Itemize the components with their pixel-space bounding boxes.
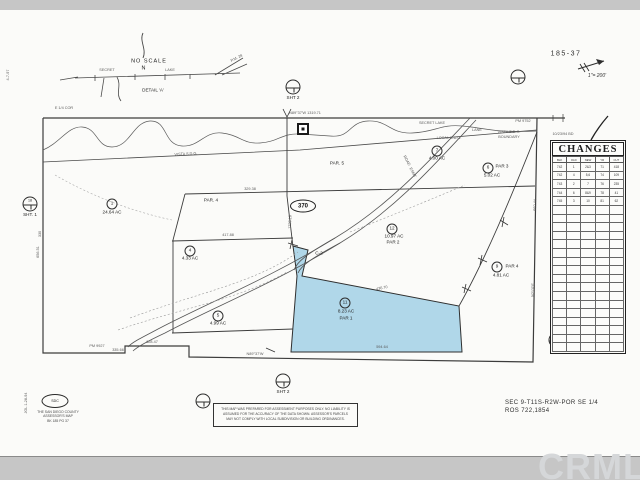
changes-empty-cell <box>553 248 567 257</box>
changes-empty-cell <box>581 214 595 223</box>
changes-empty-cell <box>609 326 623 335</box>
changes-cell: 41 <box>609 188 623 197</box>
changes-empty-cell <box>553 300 567 309</box>
crmls-watermark: CRMLS <box>538 449 640 480</box>
changes-empty-cell <box>609 309 623 318</box>
parcel-number-circle: 12 <box>387 224 398 235</box>
changes-cell: 1 <box>567 163 581 172</box>
map-label: N89°37'W <box>246 353 263 357</box>
changes-cell: 78 <box>595 188 609 197</box>
changes-empty-cell <box>553 309 567 318</box>
changes-empty-cell <box>595 334 609 343</box>
changes-empty-cell <box>553 334 567 343</box>
map-label: LANE <box>472 129 482 133</box>
map-label: PAR 4 <box>506 265 519 270</box>
changes-table: CHANGES BLKOLDNEWYRCUT74212&37141874245,… <box>550 140 626 354</box>
assessor-stamp-text: THE SAN DIEGO COUNTY ASSESSOR'S MAP BK 1… <box>28 410 88 423</box>
changes-empty-cell <box>567 231 581 240</box>
map-label: 628.47 <box>146 341 158 345</box>
map-label: 329.38 <box>244 188 256 192</box>
changes-cell: 235 <box>609 180 623 189</box>
changes-empty-cell <box>609 205 623 214</box>
changes-empty-cell <box>581 291 595 300</box>
changes-cell: 8&9 <box>581 188 595 197</box>
changes-empty-cell <box>581 240 595 249</box>
ref-number <box>197 395 210 401</box>
changes-cell: 418 <box>609 163 623 172</box>
changes-cell: 74 <box>595 171 609 180</box>
changes-empty-cell <box>567 205 581 214</box>
changes-empty-cell <box>581 309 595 318</box>
parcel-number-circle: 1 <box>107 199 118 210</box>
map-label: DETAIL 'A' <box>142 89 164 94</box>
changes-empty-cell <box>567 291 581 300</box>
changes-empty-row <box>553 300 624 309</box>
changes-empty-row <box>553 283 624 292</box>
changes-cell: 742 <box>553 171 567 180</box>
changes-empty-cell <box>581 231 595 240</box>
changes-empty-cell <box>567 266 581 275</box>
map-label: N2°07'E <box>532 283 536 297</box>
changes-cell: 71 <box>595 163 609 172</box>
changes-empty-cell <box>609 240 623 249</box>
changes-empty-cell <box>595 291 609 300</box>
changes-empty-cell <box>595 205 609 214</box>
changes-empty-cell <box>581 300 595 309</box>
changes-empty-cell <box>609 214 623 223</box>
changes-empty-cell <box>581 205 595 214</box>
changes-empty-cell <box>553 291 567 300</box>
map-label: BOUNDARY <box>498 136 519 140</box>
changes-empty-row <box>553 223 624 232</box>
changes-empty-cell <box>553 266 567 275</box>
changes-empty-cell <box>581 223 595 232</box>
changes-empty-cell <box>609 257 623 266</box>
sheet-reference-label: SHT 2 <box>277 389 290 394</box>
changes-empty-row <box>553 317 624 326</box>
changes-empty-cell <box>595 343 609 352</box>
changes-cell: 5,6 <box>581 171 595 180</box>
scale-label: 1"= 200' <box>588 73 606 79</box>
changes-row: 74468&97841 <box>553 188 624 197</box>
map-label: N <box>142 66 147 72</box>
changes-cell: 742 <box>553 163 567 172</box>
changes-cell: 10 <box>581 197 595 206</box>
changes-empty-row <box>553 274 624 283</box>
map-label: P.M. 28 <box>231 54 244 63</box>
changes-empty-cell <box>595 248 609 257</box>
map-sheet-reference-icon <box>511 70 526 85</box>
changes-empty-cell <box>581 326 595 335</box>
map-label: C-2 <box>315 252 322 257</box>
changes-empty-cell <box>581 248 595 257</box>
changes-empty-cell <box>581 283 595 292</box>
changes-empty-cell <box>609 343 623 352</box>
changes-empty-cell <box>553 214 567 223</box>
map-label: PM 9927 <box>89 345 104 349</box>
changes-empty-cell <box>553 343 567 352</box>
changes-empty-cell <box>595 274 609 283</box>
changes-empty-cell <box>581 266 595 275</box>
map-sheet-reference-icon <box>286 80 301 95</box>
changes-empty-cell <box>567 223 581 232</box>
map-label: VISTA S.D.G. <box>174 153 197 158</box>
parcel-number-circle: 7 <box>432 146 443 157</box>
changes-empty-cell <box>595 231 609 240</box>
changes-cell: 109 <box>609 171 623 180</box>
ref-tick <box>203 402 204 407</box>
changes-cell: 4 <box>567 171 581 180</box>
ref-tick <box>283 382 284 387</box>
changes-empty-row <box>553 291 624 300</box>
changes-empty-row <box>553 309 624 318</box>
changes-empty-cell <box>567 300 581 309</box>
changes-empty-cell <box>553 283 567 292</box>
map-label: PAR 3 <box>496 165 509 170</box>
ref-tick <box>293 88 294 93</box>
map-label: 10/23/94 BD <box>552 133 573 137</box>
changes-row: 7432776235 <box>553 180 624 189</box>
changes-cell: 2 <box>567 180 581 189</box>
ref-tick <box>30 205 31 210</box>
map-label: SECRET <box>99 69 114 73</box>
map-label: 656.51 <box>37 246 41 258</box>
changes-empty-cell <box>609 274 623 283</box>
parcel-number-circle: 9 <box>492 262 503 273</box>
changes-empty-cell <box>567 283 581 292</box>
map-label: 335.66 <box>112 349 124 353</box>
changes-cell: 2&3 <box>581 163 595 172</box>
changes-empty-cell <box>609 300 623 309</box>
changes-empty-row <box>553 240 624 249</box>
map-label: ESMT <box>408 167 416 178</box>
changes-cell: 745 <box>553 197 567 206</box>
section-reference-line: ROS 722,1854 <box>505 408 598 416</box>
changes-empty-cell <box>567 240 581 249</box>
disclaimer-box: THIS MAP WAS PREPARED FOR ASSESSMENT PUR… <box>213 403 358 427</box>
map-label: 4.33 AC <box>182 257 198 262</box>
map-label: PAR 1 <box>340 317 353 322</box>
changes-empty-cell <box>595 257 609 266</box>
sheet-reference-label: SHT 2 <box>287 95 300 100</box>
changes-empty-cell <box>581 257 595 266</box>
changes-row: 7453108162 <box>553 197 624 206</box>
changes-empty-cell <box>567 317 581 326</box>
changes-cell: 743 <box>553 180 567 189</box>
ref-tick <box>518 78 519 83</box>
map-label: PAR. 5 <box>330 162 344 167</box>
ref-number <box>277 375 290 381</box>
changes-empty-cell <box>567 214 581 223</box>
section-reference-line: SEC 9-T11S-R2W-POR SE 1/4 <box>505 400 598 408</box>
assessor-stamp-oval: SDC <box>42 394 69 408</box>
changes-empty-cell <box>595 326 609 335</box>
changes-empty-cell <box>609 248 623 257</box>
changes-empty-cell <box>553 205 567 214</box>
changes-empty-row <box>553 231 624 240</box>
changes-empty-cell <box>595 300 609 309</box>
parcel-number-circle: 6 <box>483 163 494 174</box>
changes-empty-row <box>553 248 624 257</box>
map-label: LAKE <box>165 69 175 73</box>
changes-empty-cell <box>595 240 609 249</box>
map-label: 24.64 AC <box>103 211 122 216</box>
changes-empty-cell <box>553 326 567 335</box>
changes-empty-cell <box>567 334 581 343</box>
changes-empty-cell <box>581 343 595 352</box>
changes-empty-cell <box>553 257 567 266</box>
ref-number <box>287 81 300 87</box>
map-label: 4.81 AC <box>493 274 509 279</box>
changes-empty-cell <box>581 317 595 326</box>
changes-empty-cell <box>553 274 567 283</box>
changes-empty-cell <box>595 317 609 326</box>
changes-empty-row <box>553 343 624 352</box>
changes-empty-cell <box>567 257 581 266</box>
changes-empty-cell <box>609 231 623 240</box>
parcel-number-circle: 11 <box>340 298 351 309</box>
changes-empty-cell <box>609 317 623 326</box>
changes-empty-cell <box>567 274 581 283</box>
changes-empty-cell <box>595 309 609 318</box>
changes-empty-cell <box>553 231 567 240</box>
changes-empty-row <box>553 266 624 275</box>
changes-empty-cell <box>567 343 581 352</box>
map-label: 660.44 <box>534 199 538 211</box>
changes-empty-cell <box>609 266 623 275</box>
changes-empty-cell <box>567 248 581 257</box>
changes-empty-row <box>553 326 624 335</box>
map-label: NO SCALE <box>131 59 167 65</box>
map-label: 10.97 AC <box>385 235 404 240</box>
changes-row: 74212&371418 <box>553 163 624 172</box>
map-label: 330 <box>39 231 43 237</box>
changes-empty-cell <box>595 266 609 275</box>
changes-empty-cell <box>595 223 609 232</box>
oval-parcel-reference: 370 <box>290 200 316 213</box>
changes-cell: 6 <box>567 188 581 197</box>
disclaimer-line: MAY NOT COMPLY WITH LOCAL SUBDIVISION OR… <box>226 418 344 422</box>
parcel-number-circle: 4 <box>185 246 196 257</box>
map-label: 4-7-97 <box>7 70 11 81</box>
changes-cell: 3 <box>567 197 581 206</box>
map-label: SECRET LAKE <box>419 122 445 126</box>
map-label: PM 9752 <box>515 120 530 124</box>
changes-empty-cell <box>567 326 581 335</box>
map-label: 5.02 AC <box>484 174 500 179</box>
changes-empty-cell <box>581 334 595 343</box>
map-sheet-reference-icon: 18 <box>23 197 38 212</box>
map-label: 417.88 <box>222 234 234 238</box>
map-sheet-reference-icon <box>276 374 291 389</box>
parcel-number-circle: 5 <box>213 311 224 322</box>
changes-empty-cell <box>595 283 609 292</box>
map-label: 1226.18 <box>289 215 293 229</box>
map-label: E 1/4 COR <box>55 107 73 111</box>
changes-cell: 62 <box>609 197 623 206</box>
ref-number <box>512 71 525 77</box>
changes-cell: 744 <box>553 188 567 197</box>
changes-empty-cell <box>581 274 595 283</box>
map-label: 8.23 AC <box>338 310 354 315</box>
sheet-reference-label: SHT. 1 <box>23 212 37 217</box>
map-label: 436.70 <box>376 286 388 292</box>
ref-number: 18 <box>24 198 37 204</box>
map-label: PAR 2 <box>387 241 400 246</box>
changes-empty-cell <box>553 317 567 326</box>
plat-map-scan: 24.64 AC4.33 AC4.99 AC4.00 ACPAR 35.02 A… <box>0 0 640 480</box>
changes-empty-cell <box>609 291 623 300</box>
changes-cell: 7 <box>581 180 595 189</box>
changes-cell: 76 <box>595 180 609 189</box>
changes-empty-cell <box>567 309 581 318</box>
stamp-line: BK 185 PG 37 <box>28 419 88 423</box>
changes-cell: 81 <box>595 197 609 206</box>
changes-empty-row <box>553 334 624 343</box>
changes-empty-cell <box>609 334 623 343</box>
section-reference: SEC 9-T11S-R2W-POR SE 1/4 ROS 722,1854 <box>505 400 598 416</box>
changes-empty-cell <box>609 223 623 232</box>
changes-row: 74245,674109 <box>553 171 624 180</box>
map-label: ROAD <box>402 155 411 166</box>
map-label: LOCAL S.D.G. <box>437 137 462 141</box>
map-label: 4.99 AC <box>210 322 226 327</box>
map-label: N89°37'W 1319.71 <box>289 112 321 116</box>
changes-title: CHANGES <box>552 142 624 156</box>
changes-empty-row <box>553 205 624 214</box>
changes-empty-cell <box>609 283 623 292</box>
map-label: PAR. 4 <box>204 199 218 204</box>
changes-empty-row <box>553 214 624 223</box>
changes-empty-cell <box>553 240 567 249</box>
map-label: 4.00 AC <box>429 157 445 162</box>
changes-empty-cell <box>553 223 567 232</box>
changes-empty-cell <box>595 214 609 223</box>
changes-grid: BLKOLDNEWYRCUT74212&37141874245,67410974… <box>552 156 624 352</box>
changes-empty-row <box>553 257 624 266</box>
map-sheet-reference-icon <box>196 394 211 409</box>
map-label: 594.64 <box>376 346 388 350</box>
sheet-number: 185-37 <box>551 51 582 58</box>
